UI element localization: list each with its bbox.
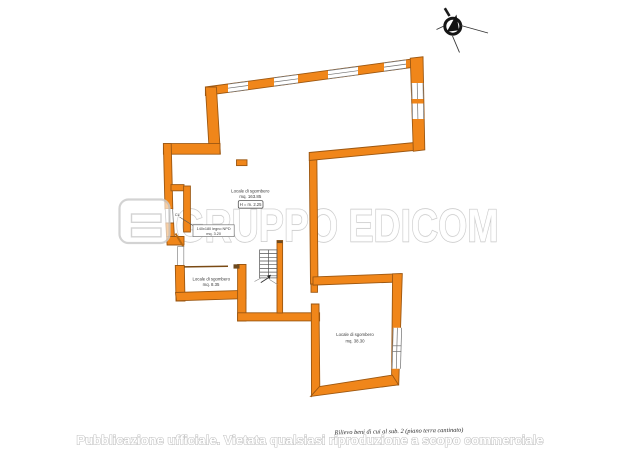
svg-text:Locale di sgombero: Locale di sgombero xyxy=(231,189,270,194)
svg-text:H = m. 2.25: H = m. 2.25 xyxy=(240,202,262,207)
svg-text:mq. 8.35: mq. 8.35 xyxy=(203,282,220,287)
svg-text:Locale di sgombero: Locale di sgombero xyxy=(336,332,374,337)
svg-text:mq. 38.30: mq. 38.30 xyxy=(345,338,365,343)
svg-text:mq. 3.20: mq. 3.20 xyxy=(206,232,221,236)
svg-text:mq. 163.85: mq. 163.85 xyxy=(239,194,262,199)
svg-text:Locale di sgombero: Locale di sgombero xyxy=(193,277,231,282)
svg-text:140x180 legno NPD: 140x180 legno NPD xyxy=(197,227,231,231)
svg-text:CL: CL xyxy=(175,212,181,217)
svg-text:Pubblicazione ufficiale. Vieta: Pubblicazione ufficiale. Vietata qualsia… xyxy=(77,433,544,448)
